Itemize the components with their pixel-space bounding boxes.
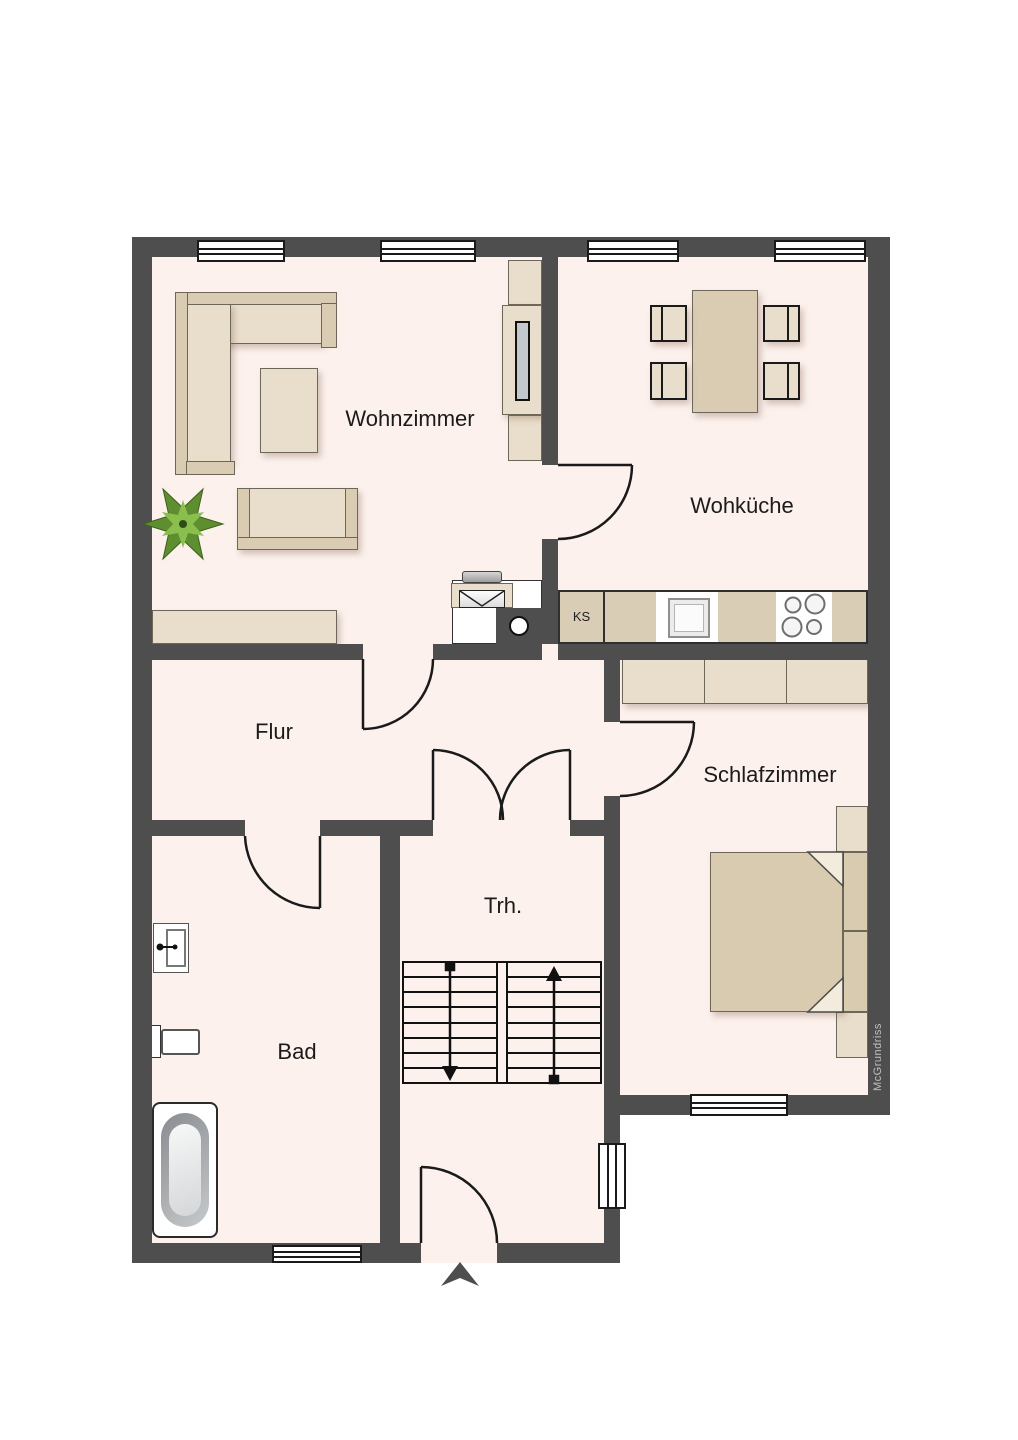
wall-unit-mirror — [515, 321, 530, 401]
window — [272, 1245, 362, 1263]
wall-flur-bottom — [320, 820, 433, 836]
dining-chair — [763, 362, 800, 400]
sofa-backrest — [237, 537, 358, 550]
wardrobe-divider — [704, 656, 705, 704]
watermark-text: McGrundriss — [872, 1000, 888, 1115]
wall-divider-kitchen — [542, 257, 558, 465]
nightstand — [836, 806, 868, 852]
wardrobe-divider — [786, 656, 787, 704]
dining-chair — [650, 362, 687, 400]
entrance-arrow-icon — [441, 1262, 479, 1286]
dining-table — [692, 290, 758, 413]
wall-flur-top — [433, 644, 542, 660]
room-label-wohnzimmer: Wohnzimmer — [310, 406, 510, 432]
sideboard — [152, 610, 337, 644]
window — [380, 240, 476, 262]
dining-chair — [650, 305, 687, 342]
stove — [776, 592, 832, 642]
room-label-treppenhaus: Trh. — [403, 893, 603, 919]
corner-sofa-seat-left — [186, 303, 231, 463]
window — [690, 1094, 788, 1116]
bed-mattress — [710, 852, 843, 1012]
wall-bottom — [497, 1243, 620, 1263]
bed-head-cushion — [843, 852, 868, 931]
toilet-bowl — [161, 1029, 200, 1055]
floor-plan: KS — [0, 0, 1018, 1440]
wall-right — [868, 237, 890, 1115]
nightstand — [836, 1012, 868, 1058]
corner-sofa-back-top — [175, 292, 337, 305]
boiler-vent-cap — [462, 571, 502, 583]
room-label-bad: Bad — [197, 1039, 397, 1065]
wall-schlafzimmer-left — [604, 796, 620, 1095]
bed-head-cushion — [843, 931, 868, 1012]
boiler-envelope — [459, 590, 505, 608]
wall-divider-kitchen — [542, 539, 558, 644]
washbasin-inner — [166, 929, 186, 967]
wall-flur-bottom — [132, 820, 245, 836]
bathtub-basin — [169, 1124, 201, 1216]
wall-unit-top — [508, 260, 542, 305]
wardrobe — [622, 656, 868, 704]
pipe-duct — [509, 616, 529, 636]
window — [598, 1143, 626, 1209]
window — [197, 240, 285, 262]
window — [587, 240, 679, 262]
corner-sofa-back-left — [175, 292, 188, 475]
kitchen-sink-basin-inner — [674, 604, 704, 632]
room-label-flur: Flur — [174, 719, 374, 745]
wall-schlafzimmer-left — [604, 644, 620, 722]
corner-sofa-armrest-bottom — [186, 461, 235, 475]
wall-left — [132, 237, 152, 1263]
wall-unit-bottom — [508, 415, 542, 461]
room-label-schlafzimmer: Schlafzimmer — [670, 762, 870, 788]
corner-sofa-armrest-right — [321, 303, 337, 348]
wall-flur-bottom — [570, 820, 604, 836]
fridge-label: KS — [558, 609, 605, 624]
toilet-tank — [151, 1025, 161, 1058]
window — [774, 240, 866, 262]
wall-flur-top — [132, 644, 363, 660]
room-label-wohkueche: Wohküche — [642, 493, 842, 519]
dining-chair — [763, 305, 800, 342]
